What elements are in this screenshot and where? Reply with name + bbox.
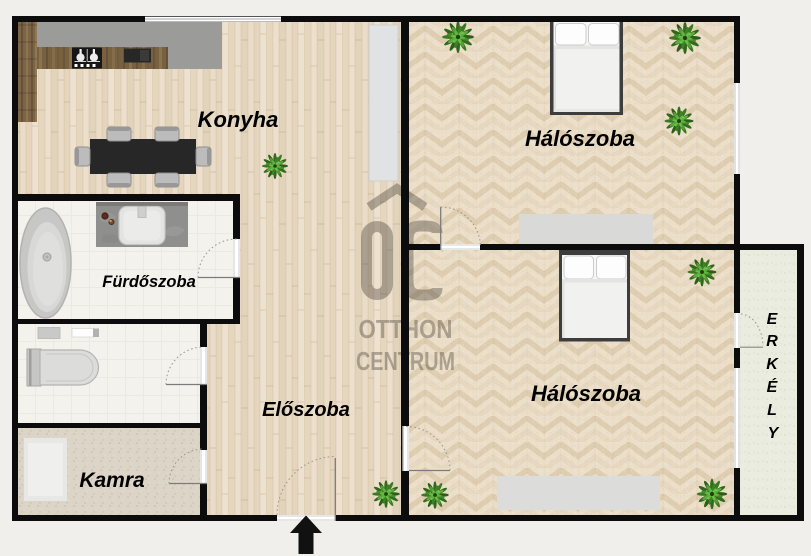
svg-text:Hálószoba: Hálószoba: [525, 126, 635, 151]
svg-text:Előszoba: Előszoba: [262, 399, 350, 421]
svg-text:Kamra: Kamra: [79, 469, 145, 492]
svg-text:Y: Y: [768, 425, 780, 442]
svg-text:E: E: [767, 311, 779, 328]
svg-text:Fürdőszoba: Fürdőszoba: [102, 273, 196, 291]
svg-text:É: É: [767, 377, 779, 396]
svg-text:R: R: [766, 333, 778, 350]
svg-text:K: K: [766, 356, 779, 373]
svg-text:L: L: [767, 402, 777, 419]
svg-text:Hálószoba: Hálószoba: [531, 381, 641, 406]
svg-text:Konyha: Konyha: [198, 107, 279, 132]
